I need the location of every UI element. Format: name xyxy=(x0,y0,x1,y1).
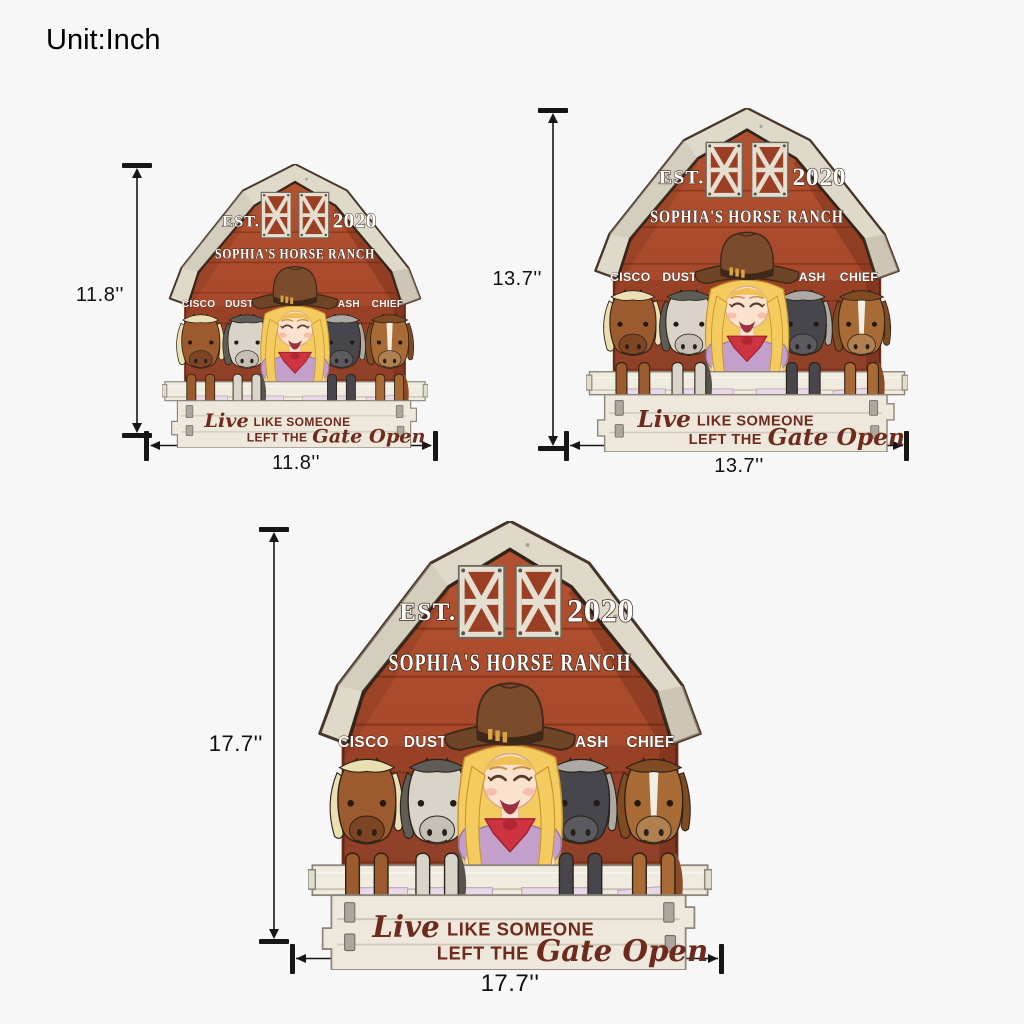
small-height-label: 11.8'' xyxy=(52,284,124,307)
barn-sign-small xyxy=(162,164,428,448)
medium-height-label: 13.7'' xyxy=(464,268,542,291)
medium-width-label: 13.7'' xyxy=(688,455,790,478)
large-height-label: 17.7'' xyxy=(181,731,263,757)
barn-sign-large xyxy=(308,521,712,970)
large-width-label: 17.7'' xyxy=(448,970,572,998)
unit-label: Unit:Inch xyxy=(46,24,160,57)
size-chart-page: { "page": { "unit_label": "Unit:Inch", "… xyxy=(0,0,1024,1024)
small-width-label: 11.8'' xyxy=(246,452,346,475)
barn-sign-medium xyxy=(586,108,908,452)
